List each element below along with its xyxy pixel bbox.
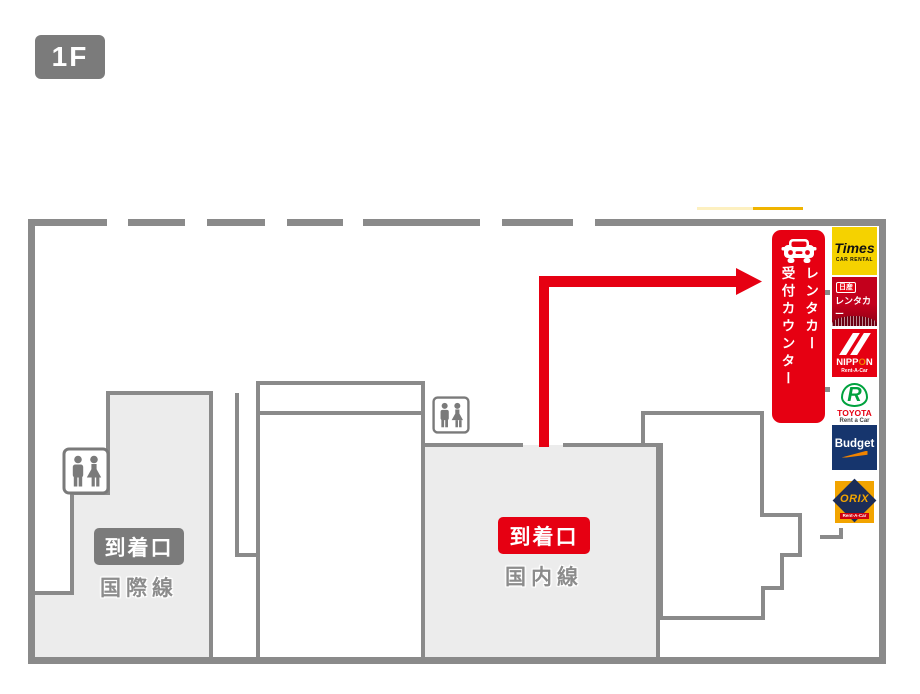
connector-nub [825,290,830,295]
toyota-subtitle: Rent a Car [839,418,869,424]
orix-title: ORIX [832,493,877,505]
budget-swoosh [842,451,868,458]
line-label-domestic: 国内線 [498,561,590,591]
budget-title: Budget [835,438,875,450]
gate-label: 到着口 [105,532,174,562]
decorative-yellow-line [697,207,803,210]
logo-budget: Budget [832,425,877,470]
logo-nissan: 日産 レンタカー [832,277,877,326]
toyota-r-mark: R [841,383,867,407]
nippon-title: NIPPON [832,357,877,368]
banner-line-1: レンタカー [799,266,823,389]
floor-label: 1F [52,41,89,73]
corridor-lines [237,393,258,555]
room-central-block [258,383,423,659]
car-icon [781,237,817,264]
times-subtitle: CAR RENTAL [836,257,873,263]
dashed-top-wall [28,219,886,226]
line-label-international: 国際線 [94,572,184,602]
nissan-mark: 日産 [836,282,856,293]
floor-label-badge: 1F [35,35,105,79]
orix-subtitle: Rent-A-Car [840,513,869,519]
connector-nub [825,387,830,392]
banner-line-2: 受付カウンター [775,266,799,389]
logo-toyota: R TOYOTA Rent a Car [832,379,877,427]
toyota-title: TOYOTA [837,408,872,418]
room-right-stepped [643,413,800,618]
logo-times: Times CAR RENTAL [832,227,877,275]
room-international [33,393,211,659]
rental-counter-banner-text: レンタカー 受付カウンター [775,266,822,389]
times-title: Times [834,240,874,256]
gate-badge-domestic: 到着口 [498,517,590,554]
restroom-icon [62,447,110,495]
logo-nippon: NIPPON Rent-A-Car [832,329,877,377]
floor-map-page: 1F 到着口 [0,0,920,694]
nippon-subtitle: Rent-A-Car [832,368,877,374]
rental-counter-banner: レンタカー 受付カウンター [772,230,825,423]
logo-orix: ORIX Rent-A-Car [832,478,877,528]
restroom-icon [432,396,470,434]
gate-label: 到着口 [510,521,579,551]
gate-badge-international: 到着口 [94,528,184,565]
nissan-swoosh [832,316,877,326]
